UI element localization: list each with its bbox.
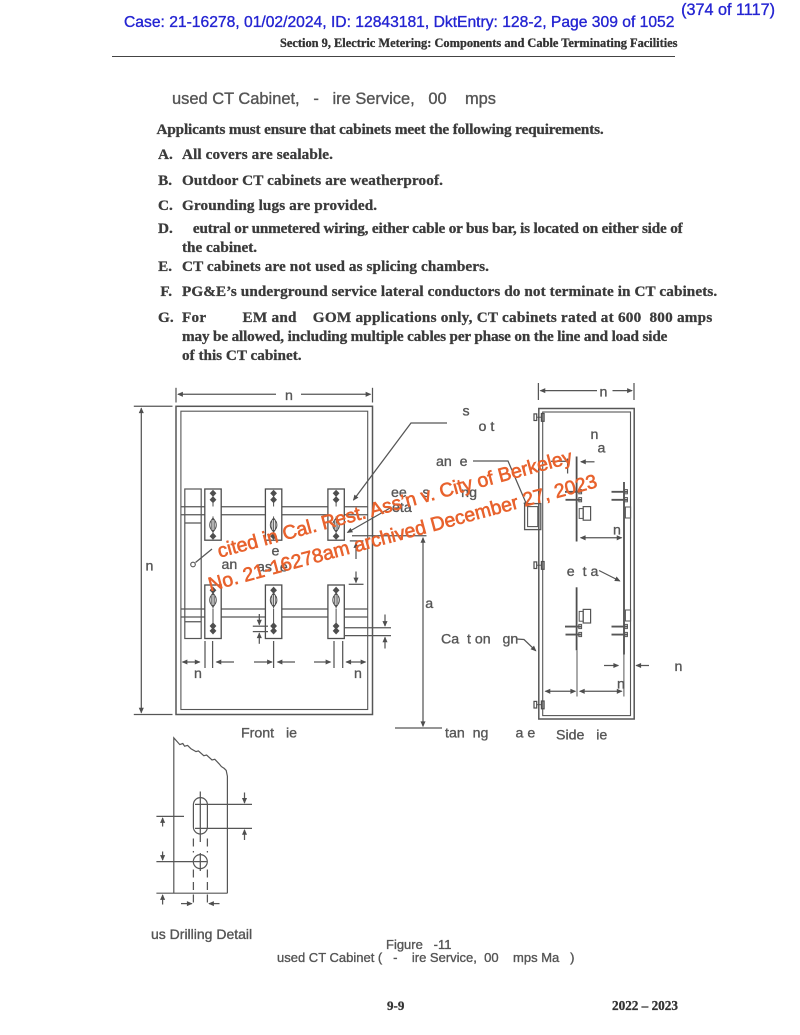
svg-text:Ca t on gn: Ca t on gn	[441, 632, 518, 648]
svg-text:o t: o t	[479, 419, 495, 435]
svg-text:a: a	[425, 596, 433, 612]
svg-text:n: n	[146, 559, 154, 575]
svg-text:s: s	[463, 404, 470, 420]
svg-text:n: n	[617, 676, 625, 692]
svg-text:a: a	[598, 441, 606, 457]
svg-text:a e: a e	[516, 725, 536, 741]
svg-text:n: n	[600, 384, 608, 400]
svg-text:n: n	[285, 388, 293, 404]
svg-text:n: n	[194, 666, 202, 682]
svg-text:n: n	[675, 659, 683, 675]
svg-text:e t a: e t a	[567, 564, 599, 580]
svg-text:tan ng: tan ng	[445, 725, 488, 741]
svg-text:Front ie: Front ie	[241, 726, 297, 742]
svg-text:n: n	[613, 522, 621, 538]
svg-text:n: n	[354, 666, 362, 682]
svg-text:an e: an e	[436, 454, 468, 470]
svg-text:Side ie: Side ie	[556, 728, 607, 744]
